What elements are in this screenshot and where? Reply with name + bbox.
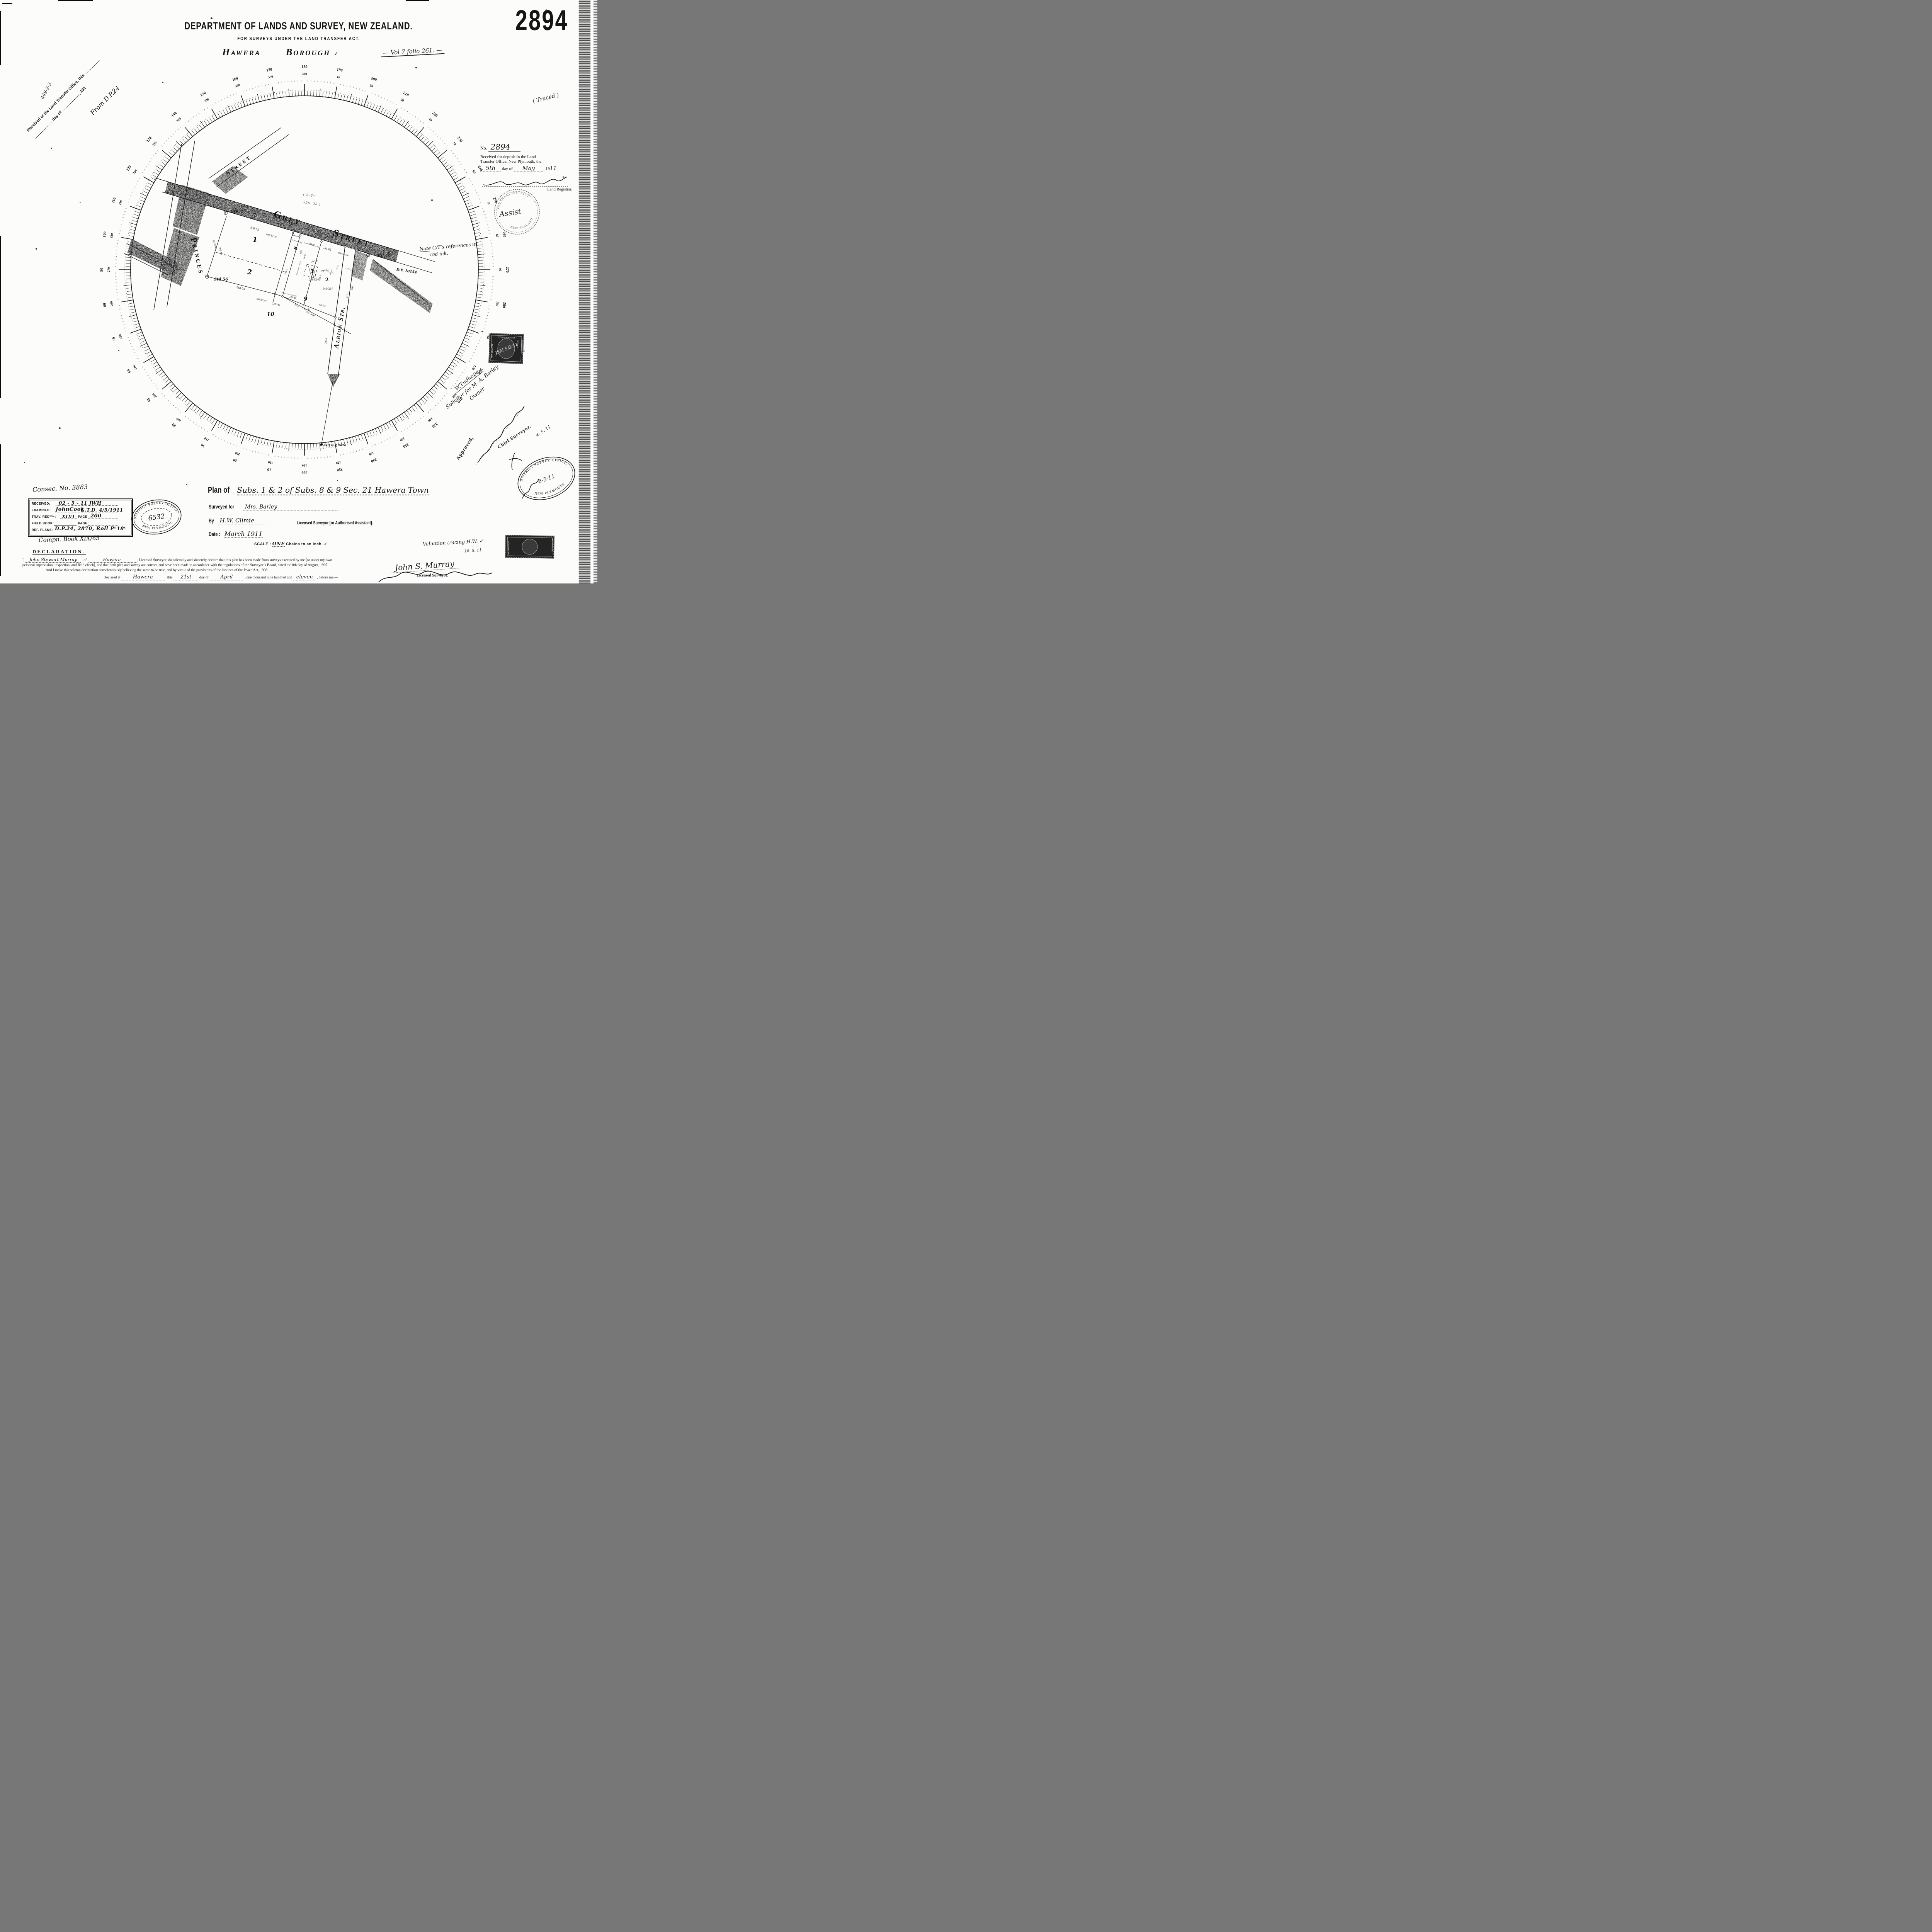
protractor-tick — [329, 93, 330, 98]
protractor-degree-digit: 2 — [343, 84, 344, 86]
protractor-degree-digit: 2 — [115, 263, 117, 264]
protractor-tick — [332, 93, 332, 98]
protractor-tick — [364, 433, 368, 444]
protractor-outer-label: 150 — [199, 91, 207, 97]
protractor-tick — [314, 443, 314, 448]
protractor-inner-label: 280 — [109, 233, 114, 238]
protractor-tick — [130, 206, 141, 210]
protractor-tick — [180, 141, 184, 145]
protractor-tick — [163, 160, 167, 163]
protractor-degree-digit: 9 — [157, 150, 159, 152]
protractor-tick — [416, 403, 424, 412]
protractor-tick — [349, 438, 351, 445]
protractor-tick — [367, 432, 369, 437]
protractor-tick — [261, 439, 262, 444]
protractor-outer-label: 140 — [170, 111, 178, 118]
protractor-degree-digit: 1 — [395, 434, 397, 436]
protractor-degree-digit: 6 — [122, 217, 124, 218]
protractor-outer-label: 190 — [337, 68, 343, 73]
protractor-tick — [204, 121, 207, 126]
protractor-outer-label: 320 — [431, 422, 439, 429]
protractor-degree-digit: 5 — [474, 189, 476, 191]
protractor-tick — [126, 260, 131, 261]
protractor-tick — [165, 157, 169, 160]
protractor-tick — [478, 251, 483, 252]
protractor-tick — [185, 128, 193, 137]
protractor-tick — [314, 91, 314, 96]
protractor-tick — [447, 165, 453, 170]
protractor-tick — [355, 99, 357, 103]
dust-speck — [431, 199, 433, 201]
protractor-tick — [468, 329, 479, 333]
protractor-tick — [418, 401, 422, 405]
protractor-degree-digit: 5 — [224, 440, 226, 442]
protractor-degree-digit: 4 — [198, 425, 200, 427]
protractor-tick — [323, 92, 323, 97]
protractor-degree-digit: 2 — [177, 409, 179, 411]
protractor-degree-digit: 6 — [456, 380, 458, 382]
protractor-tick — [442, 377, 446, 380]
protractor-tick — [470, 323, 474, 325]
protractor-tick — [126, 279, 131, 279]
protractor-tick — [165, 379, 169, 382]
protractor-tick — [455, 177, 466, 183]
protractor-tick — [170, 384, 173, 387]
protractor-outer-label: 230 — [456, 136, 463, 143]
protractor-degree-digit: 2 — [374, 94, 376, 95]
protractor-degree-digit: 7 — [389, 100, 391, 103]
protractor-degree-digit: 7 — [377, 442, 379, 445]
protractor-degree-digit: 7 — [314, 457, 315, 459]
protractor-tick — [192, 405, 195, 409]
boundary-line — [399, 251, 435, 262]
protractor-tick — [139, 335, 143, 337]
protractor-tick — [463, 340, 468, 342]
protractor-tick — [423, 139, 427, 143]
protractor-inner-label: 10 — [337, 75, 340, 79]
protractor-degree-digit: 5 — [121, 220, 123, 221]
protractor-tick — [341, 95, 342, 100]
protractor-tick — [396, 118, 399, 122]
protractor-tick — [199, 125, 202, 129]
protractor-inner-label: 290 — [118, 200, 123, 206]
protractor-degree-digit: 1 — [490, 240, 492, 241]
protractor-degree-digit: 6 — [409, 425, 411, 427]
protractor-tick — [477, 291, 482, 292]
protractor-degree-digit: 9 — [118, 305, 120, 306]
protractor-tick — [246, 434, 248, 439]
protractor-tick — [144, 191, 148, 194]
protractor-degree-digit: 2 — [488, 308, 490, 310]
protractor-tick — [131, 226, 136, 228]
protractor-tick — [130, 309, 135, 310]
protractor-inner-label: 320 — [175, 117, 182, 123]
protractor-degree-digit: 7 — [248, 449, 250, 451]
protractor-degree-digit: 4 — [435, 133, 437, 135]
protractor-degree-digit: 3 — [119, 226, 121, 228]
protractor-tick — [476, 242, 481, 243]
protractor-degree-digit: 3 — [261, 452, 262, 454]
protractor-degree-digit: 8 — [187, 417, 189, 419]
protractor-degree-digit: 9 — [185, 415, 187, 417]
protractor-tick — [126, 282, 131, 282]
dimension-label: 189·0 — [318, 275, 322, 281]
lot-label: 8 — [293, 246, 299, 251]
protractor-outer-label: 180 — [301, 65, 307, 69]
protractor-tick — [176, 145, 179, 149]
protractor-degree-digit: 6 — [134, 186, 136, 188]
protractor-degree-digit: 8 — [490, 296, 492, 297]
protractor-tick — [148, 183, 152, 185]
protractor-degree-digit: 3 — [294, 457, 295, 459]
protractor-degree-digit: 2 — [233, 444, 235, 446]
protractor-tick — [470, 214, 474, 216]
protractor-tick — [468, 206, 479, 210]
protractor-degree-digit: 1 — [480, 337, 481, 338]
protractor-inner-label: 270 — [107, 267, 111, 272]
protractor-degree-digit: 3 — [145, 166, 147, 168]
protractor-degree-digit: 9 — [450, 388, 452, 389]
dimension-label: 100 — [299, 250, 303, 255]
protractor-tick — [160, 165, 164, 168]
protractor-tick — [138, 206, 142, 207]
two-and-six-revenue-stamp: TWO SHILLINGSAND SIXPENCE — [505, 535, 554, 558]
protractor-tick — [442, 160, 446, 163]
protractor-degree-digit: 9 — [236, 92, 238, 94]
protractor-degree-digit: 2 — [362, 448, 364, 450]
protractor-inner-label: 170 — [336, 460, 341, 465]
boundary-line — [282, 235, 300, 296]
protractor-tick — [292, 443, 293, 448]
protractor-degree-digit: 8 — [464, 169, 466, 170]
protractor-outer-label: 10 — [267, 467, 272, 472]
protractor-degree-digit: 9 — [125, 207, 127, 209]
protractor-outer-label: 160 — [232, 76, 239, 82]
protractor-inner-label: 50 — [452, 141, 457, 146]
protractor-inner-label: 360 — [302, 72, 307, 76]
protractor-degree-digit: 3 — [491, 246, 493, 247]
protractor-degree-digit: 4 — [381, 96, 383, 99]
protractor-tick — [432, 148, 435, 151]
protractor-degree-digit: 8 — [128, 340, 130, 341]
protractor-tick — [267, 440, 269, 445]
protractor-tick — [156, 170, 160, 172]
protractor-degree-digit: 8 — [163, 395, 165, 397]
protractor-degree-digit: 1 — [422, 415, 424, 417]
dimension-label: 238·03 — [250, 226, 259, 231]
protractor-degree-digit: 1 — [185, 122, 187, 124]
protractor-degree-digit: 4 — [386, 438, 388, 440]
protractor-inner-label: 250 — [118, 334, 123, 340]
protractor-tick — [264, 95, 265, 100]
protractor-tick — [471, 218, 475, 219]
protractor-degree-digit: 2 — [215, 102, 217, 104]
protractor-degree-digit: 1 — [157, 388, 159, 389]
protractor-tick — [412, 129, 415, 133]
protractor-degree-digit: 6 — [167, 400, 170, 402]
protractor-tick — [316, 443, 317, 448]
protractor-tick — [185, 137, 188, 141]
protractor-degree-digit: 1 — [236, 445, 238, 447]
protractor-tick — [476, 297, 481, 298]
protractor-tick — [155, 364, 159, 367]
protractor-tick — [197, 408, 200, 412]
protractor-tick — [445, 165, 449, 168]
protractor-outer-label: 210 — [402, 91, 410, 97]
protractor-degree-digit: 1 — [274, 82, 276, 84]
protractor-degree-digit: 5 — [255, 86, 256, 88]
protractor-degree-digit: 5 — [121, 318, 123, 319]
svg-text:NEW ZEALAND: NEW ZEALAND — [491, 344, 493, 358]
lot-label: 2 — [247, 268, 252, 276]
protractor-tick — [381, 109, 383, 114]
protractor-degree-digit: 6 — [147, 374, 149, 376]
protractor-degree-digit: 1 — [340, 83, 341, 85]
protractor-tick — [267, 95, 269, 100]
protractor-tick — [257, 438, 259, 445]
protractor-degree-digit: 1 — [301, 457, 301, 459]
protractor-degree-digit: 8 — [245, 448, 247, 450]
protractor-degree-digit: 6 — [349, 452, 351, 454]
protractor-degree-digit: 1 — [138, 361, 140, 362]
protractor-tick — [140, 338, 145, 340]
protractor-degree-digit: 5 — [458, 377, 460, 379]
protractor-tick — [421, 399, 424, 403]
protractor-degree-digit: 7 — [442, 140, 444, 142]
protractor-tick — [455, 357, 466, 363]
protractor-degree-digit: 8 — [204, 109, 205, 111]
protractor-degree-digit: 1 — [161, 145, 163, 147]
protractor-tick — [452, 175, 456, 178]
protractor-degree-digit: 4 — [323, 456, 325, 458]
protractor-degree-digit: 9 — [117, 240, 119, 241]
protractor-tick — [240, 432, 242, 437]
protractor-degree-digit: 6 — [476, 192, 478, 194]
protractor-tick — [153, 175, 157, 178]
protractor-tick — [176, 391, 179, 394]
protractor-tick — [402, 414, 405, 418]
protractor-degree-digit: 7 — [454, 383, 456, 384]
dimension-label: 181·83 — [323, 246, 332, 252]
protractor-degree-digit: 2 — [404, 109, 405, 111]
dimension-label: 126·49 — [272, 302, 281, 307]
dimension-label: 77·9 — [294, 304, 299, 308]
protractor-degree-digit: 8 — [330, 82, 332, 84]
protractor-degree-digit: 9 — [161, 393, 163, 395]
protractor-degree-digit: 4 — [168, 138, 170, 140]
protractor-tick — [364, 95, 368, 106]
protractor-degree-digit: 5 — [224, 98, 226, 100]
protractor-degree-digit: 1 — [115, 266, 117, 267]
survey-point — [344, 246, 346, 247]
protractor-degree-digit: 2 — [483, 211, 485, 212]
protractor-degree-digit: 4 — [172, 404, 175, 406]
protractor-tick — [129, 236, 134, 236]
protractor-tick — [425, 395, 429, 398]
protractor-tick — [389, 422, 391, 426]
protractor-tick — [185, 399, 188, 403]
street-shading-stipple — [370, 259, 433, 313]
protractor-degree-digit: 5 — [437, 402, 439, 404]
protractor-tick — [467, 206, 471, 207]
protractor-tick — [472, 220, 476, 222]
protractor-tick — [394, 116, 397, 121]
protractor-degree-digit: 4 — [227, 441, 229, 443]
protractor-tick — [192, 131, 195, 134]
protractor-tick — [459, 189, 464, 191]
protractor-tick — [194, 129, 197, 133]
boundary-line — [275, 233, 293, 294]
protractor-degree-digit: 3 — [417, 419, 419, 421]
protractor-degree-digit: 9 — [127, 337, 129, 338]
protractor-degree-digit: 7 — [190, 419, 192, 422]
protractor-degree-digit: 7 — [135, 183, 138, 185]
protractor-degree-digit: 1 — [307, 80, 308, 82]
protractor-tick — [352, 98, 354, 102]
protractor-degree-digit: 9 — [422, 122, 424, 124]
protractor-degree-digit: 6 — [151, 158, 153, 160]
protractor-tick — [226, 426, 228, 430]
survey-standard-center — [207, 276, 208, 277]
protractor-degree-digit: 5 — [474, 349, 476, 350]
protractor-degree-digit: 2 — [187, 120, 189, 122]
protractor-tick — [261, 96, 262, 101]
protractor-outer-label: 110 — [111, 197, 117, 204]
protractor-tick — [228, 105, 231, 112]
protractor-outer-label: 310 — [456, 396, 463, 404]
protractor-degree-digit: 8 — [119, 308, 121, 310]
protractor-tick — [478, 257, 483, 258]
protractor-degree-digit: 8 — [483, 327, 485, 329]
protractor-degree-digit: 5 — [492, 286, 493, 287]
protractor-tick — [277, 93, 277, 98]
protractor-tick — [391, 420, 398, 431]
protractor-outer-label: 340 — [370, 457, 377, 463]
protractor-degree-digit: 7 — [116, 246, 118, 247]
protractor-tick — [213, 419, 215, 423]
protractor-degree-digit: 3 — [359, 449, 361, 451]
protractor-tick — [145, 189, 150, 191]
protractor-degree-digit: 3 — [442, 398, 444, 400]
protractor-tick — [200, 121, 204, 127]
protractor-tick — [416, 128, 424, 137]
protractor-degree-digit: 4 — [116, 289, 117, 290]
protractor-tick — [476, 237, 488, 239]
survey-point — [335, 316, 336, 318]
protractor-degree-digit: 5 — [412, 114, 414, 116]
protractor-degree-digit: 9 — [480, 201, 481, 203]
protractor-degree-digit: 1 — [371, 92, 373, 94]
protractor-tick — [443, 374, 447, 378]
protractor-tick — [461, 346, 465, 348]
protractor-degree-digit: 8 — [115, 276, 117, 277]
protractor-degree-digit: 6 — [439, 138, 442, 140]
dust-speck — [481, 331, 483, 332]
protractor-tick — [162, 162, 165, 165]
protractor-degree-digit: 9 — [395, 104, 397, 105]
protractor-degree-digit: 9 — [401, 430, 402, 432]
protractor-inner-label: 190 — [268, 460, 273, 465]
protractor-degree-digit: 7 — [359, 88, 361, 90]
protractor-tick — [476, 300, 488, 302]
protractor-tick — [144, 346, 148, 348]
protractor-tick — [454, 178, 458, 180]
svg-text:AND SIXPENCE: AND SIXPENCE — [551, 538, 554, 551]
protractor-inner-label: 200 — [235, 451, 241, 457]
protractor-degree-digit: 2 — [452, 153, 454, 155]
protractor-tick — [370, 431, 372, 435]
protractor-tick — [473, 223, 480, 224]
dimension-label: 16·32 — [335, 265, 339, 270]
protractor-tick — [454, 359, 458, 362]
protractor-tick — [151, 359, 155, 362]
protractor-tick — [452, 362, 456, 364]
protractor-degree-digit: 2 — [420, 417, 422, 419]
protractor-degree-digit: 6 — [473, 352, 475, 354]
lot-label: 10 — [267, 311, 274, 318]
protractor-tick — [473, 315, 480, 316]
protractor-tick — [358, 100, 360, 104]
protractor-tick — [235, 105, 236, 110]
protractor-degree-digit: 2 — [444, 395, 446, 397]
protractor-tick — [349, 94, 351, 102]
protractor-degree-digit: 6 — [172, 133, 175, 135]
protractor-outer-label: 40 — [171, 422, 177, 428]
protractor-tick — [249, 435, 251, 440]
protractor-outer-label: 70 — [111, 337, 117, 342]
protractor-tick — [130, 329, 141, 333]
protractor-tick — [409, 408, 412, 412]
protractor-degree-digit: 1 — [180, 411, 182, 413]
protractor-degree-digit: 6 — [120, 315, 122, 316]
protractor-tick — [469, 211, 473, 213]
protractor-tick — [128, 294, 133, 295]
protractor-degree-digit: 3 — [378, 95, 379, 97]
protractor-tick — [241, 95, 245, 106]
protractor-degree-digit: 3 — [327, 456, 328, 458]
protractor-circle: 1234567891234567891234567891234567891234… — [100, 65, 509, 474]
protractor-degree-digit: 3 — [175, 407, 177, 409]
protractor-inner-label: 140 — [427, 417, 434, 423]
dimension-label: 106°32′10″ — [256, 298, 267, 303]
protractor-tick — [197, 127, 200, 131]
protractor-tick — [463, 197, 468, 199]
dust-speck — [269, 462, 270, 463]
protractor-degree-digit: 5 — [437, 135, 439, 137]
protractor-degree-digit: 3 — [462, 372, 464, 374]
protractor-degree-digit: 8 — [392, 102, 394, 104]
protractor-degree-digit: 5 — [458, 160, 460, 162]
protractor-degree-digit: 2 — [163, 143, 165, 145]
taranaki-district-stamp: TARANAKI DISTRICTNEW ZEALAND — [488, 182, 546, 241]
protractor-degree-digit: 1 — [117, 299, 119, 300]
protractor-tick — [474, 230, 479, 231]
protractor-inner-label: 160 — [369, 451, 375, 457]
protractor-tick — [172, 386, 175, 389]
protractor-degree-digit: 9 — [142, 366, 144, 367]
protractor-degree-digit: 9 — [446, 145, 448, 147]
protractor-tick — [213, 116, 215, 121]
protractor-tick — [436, 384, 440, 387]
protractor-inner-label: 70 — [486, 201, 491, 205]
protractor-degree-digit: 7 — [115, 279, 117, 280]
protractor-degree-digit: 3 — [115, 259, 117, 260]
protractor-degree-digit: 6 — [415, 116, 417, 118]
protractor-degree-digit: 3 — [389, 437, 391, 439]
protractor-tick — [386, 112, 388, 116]
protractor-degree-digit: 1 — [489, 305, 491, 306]
dimension-label: 106·53 — [318, 303, 326, 308]
